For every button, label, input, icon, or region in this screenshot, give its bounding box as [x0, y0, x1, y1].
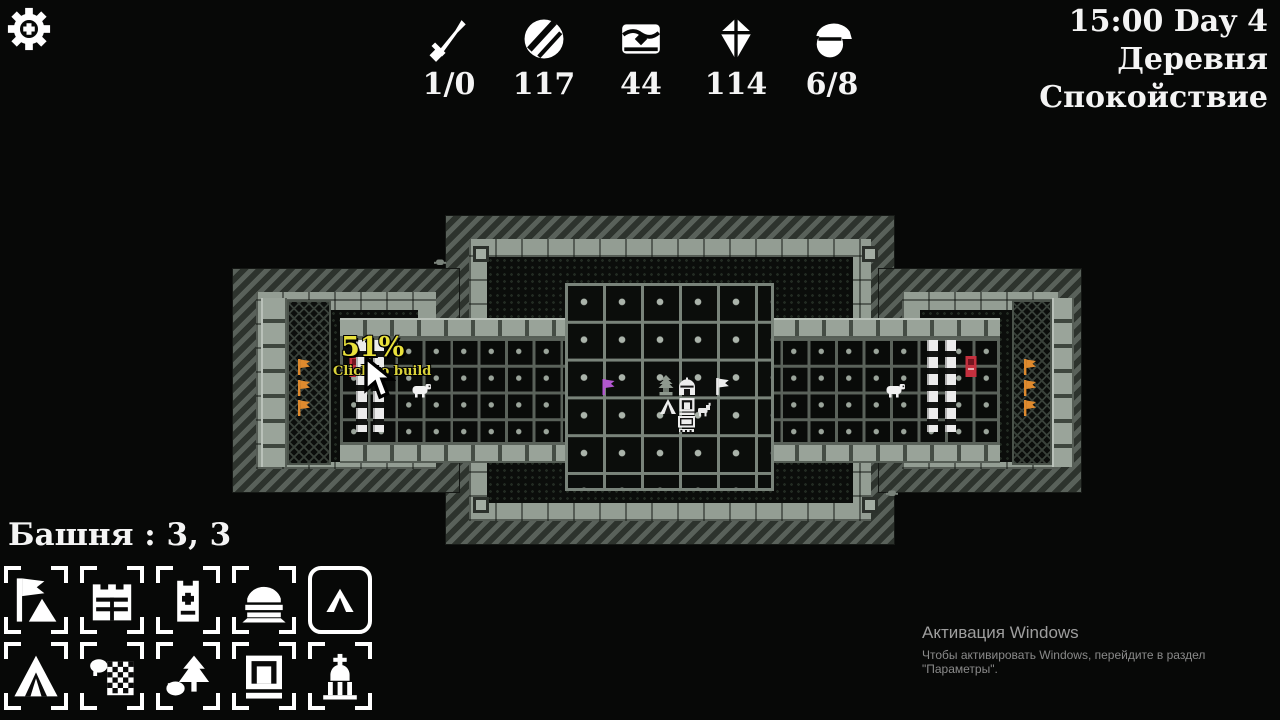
screen-house-sprite [677, 415, 696, 433]
wall-post [862, 497, 878, 513]
sheep-sprite [885, 382, 907, 398]
watermark-title: Активация Windows [922, 623, 1280, 643]
build-item-farm[interactable] [80, 642, 144, 710]
gate-icon [88, 574, 136, 626]
build-item-big-tent[interactable] [4, 642, 68, 710]
critter-sprite [434, 258, 446, 267]
watchtower-icon [164, 574, 212, 626]
arch-house-icon [240, 650, 288, 702]
wall-post [473, 246, 489, 262]
goat-sprite [697, 402, 712, 417]
church-icon [316, 650, 364, 702]
build-item-yurt[interactable] [232, 566, 296, 634]
orange-flag-sprite [1022, 379, 1038, 397]
orange-flag-sprite [296, 399, 312, 417]
critter-sprite [886, 489, 898, 498]
orange-flag-sprite [296, 358, 312, 376]
build-menu [4, 566, 372, 710]
watermark-subtitle: Чтобы активировать Windows, перейдите в … [922, 648, 1280, 676]
build-item-arch-house[interactable] [232, 642, 296, 710]
farm-icon [88, 650, 136, 702]
orange-flag-sprite [1022, 399, 1038, 417]
build-item-watchtower[interactable] [156, 566, 220, 634]
orange-flag-sprite [1022, 358, 1038, 376]
purple-flag-sprite [600, 378, 617, 396]
left-tower-stone-column [261, 298, 287, 467]
build-item-grove[interactable] [156, 642, 220, 710]
wall-post [473, 497, 489, 513]
tent-icon [324, 582, 356, 618]
banner-icon [12, 574, 60, 626]
big-tent-icon [12, 650, 60, 702]
white-flag-sprite [714, 377, 731, 396]
mouse-cursor-icon [360, 356, 396, 402]
build-item-gate[interactable] [80, 566, 144, 634]
build-item-banner[interactable] [4, 566, 68, 634]
build-item-church[interactable] [308, 642, 372, 710]
wall-post [862, 246, 878, 262]
sheep-sprite [411, 382, 433, 398]
statue-tree-sprite [655, 374, 677, 397]
grove-icon [164, 650, 212, 702]
yurt-icon [240, 574, 288, 626]
tent-small-sprite [659, 397, 677, 416]
build-item-tent[interactable] [308, 566, 372, 634]
selection-label: Башня : 3, 3 [8, 517, 231, 553]
windows-activation-watermark: Активация Windows Чтобы активировать Win… [922, 623, 1280, 676]
dome-house-sprite [677, 377, 697, 397]
orange-flag-sprite [296, 379, 312, 397]
right-tower-stone-column [1052, 298, 1074, 467]
red-door-sprite [964, 355, 978, 378]
barricade-sprite [945, 340, 956, 432]
barricade-sprite [927, 340, 938, 432]
arch-house-small-sprite [678, 397, 696, 416]
